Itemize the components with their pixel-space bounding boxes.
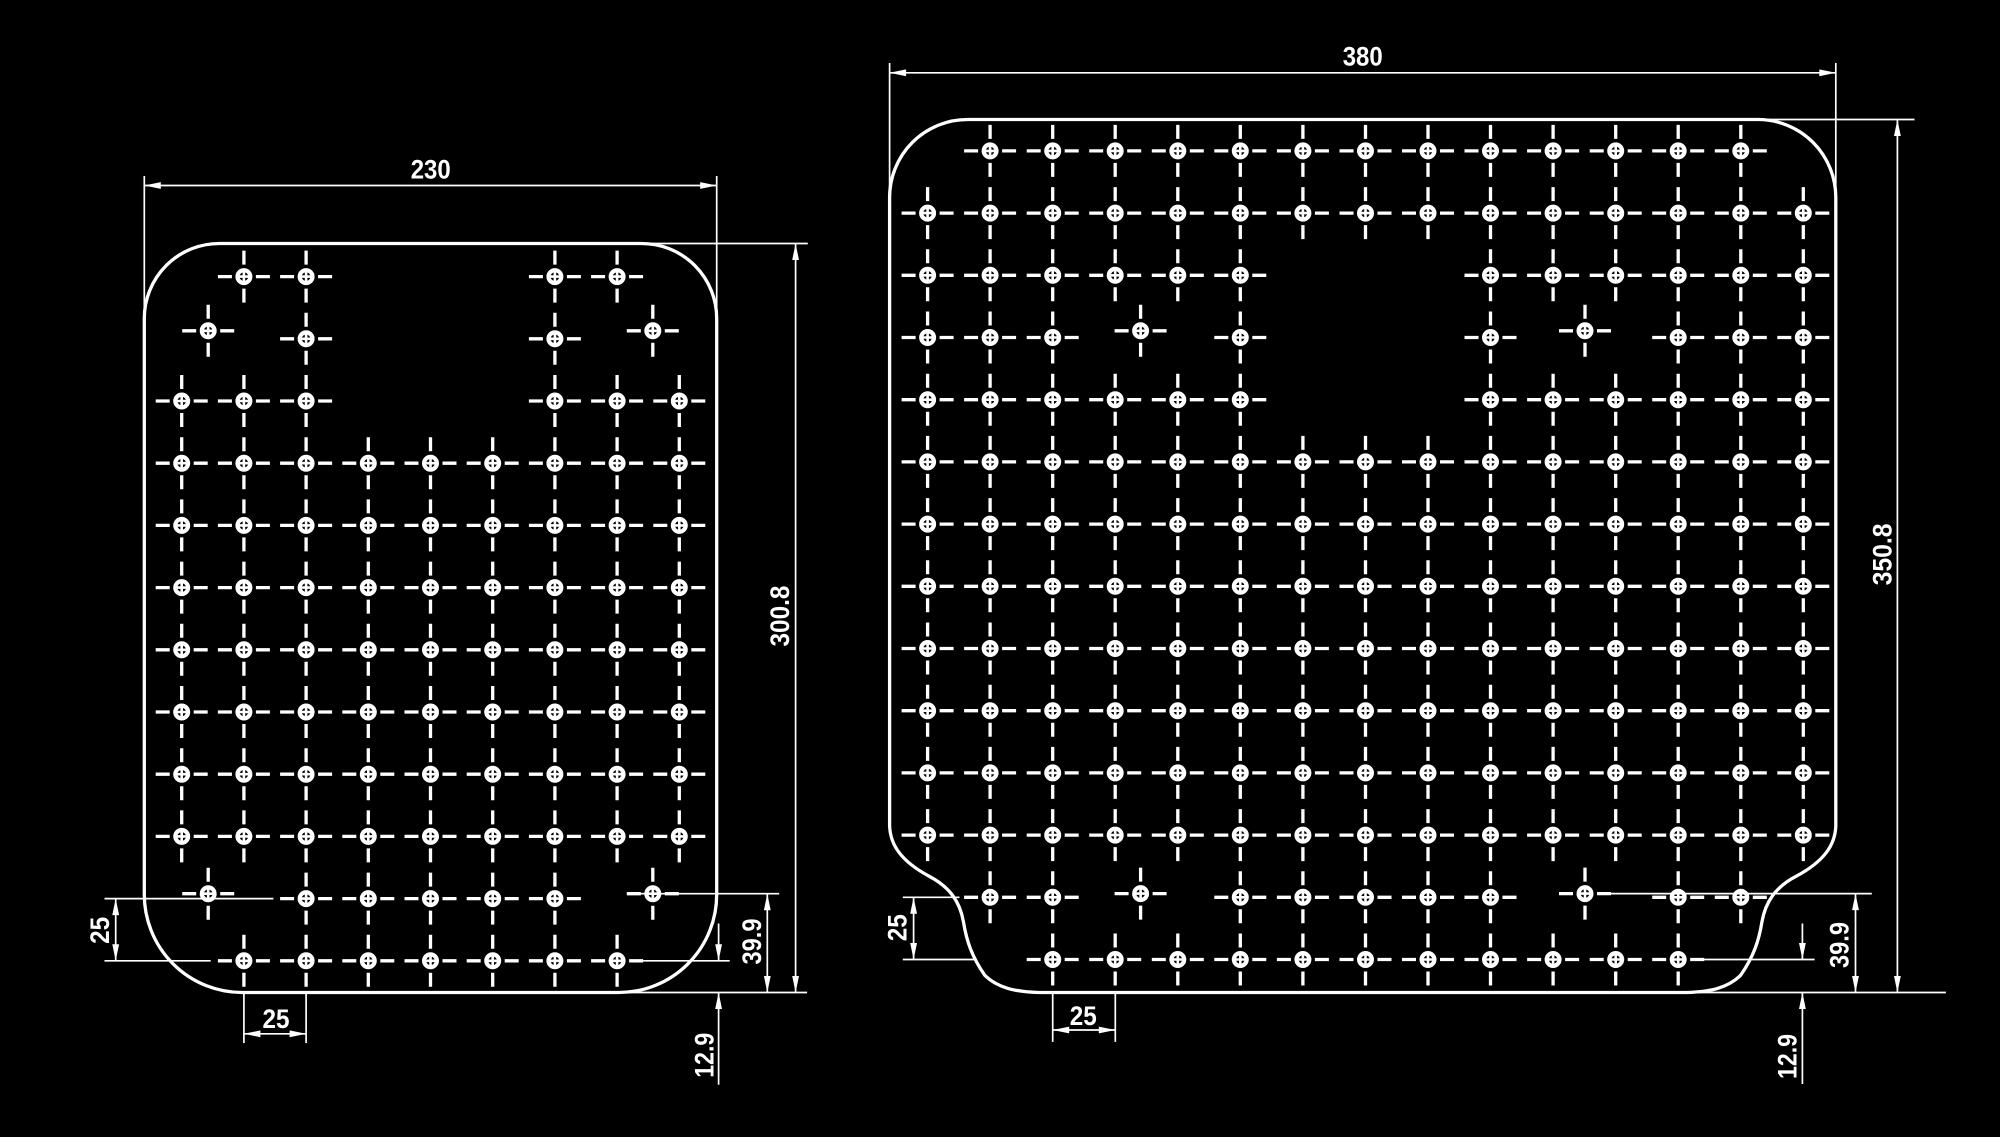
svg-text:380: 380 <box>1343 42 1383 72</box>
svg-text:230: 230 <box>411 155 451 185</box>
svg-text:300.8: 300.8 <box>765 586 795 647</box>
svg-text:25: 25 <box>1070 1001 1097 1031</box>
svg-text:25: 25 <box>263 1004 290 1034</box>
svg-text:39.9: 39.9 <box>1825 922 1855 968</box>
svg-text:25: 25 <box>883 914 913 941</box>
svg-text:12.9: 12.9 <box>1773 1034 1803 1079</box>
svg-text:25: 25 <box>85 917 115 944</box>
svg-text:12.9: 12.9 <box>689 1033 719 1078</box>
svg-text:350.8: 350.8 <box>1868 523 1898 585</box>
svg-text:39.9: 39.9 <box>737 919 767 965</box>
